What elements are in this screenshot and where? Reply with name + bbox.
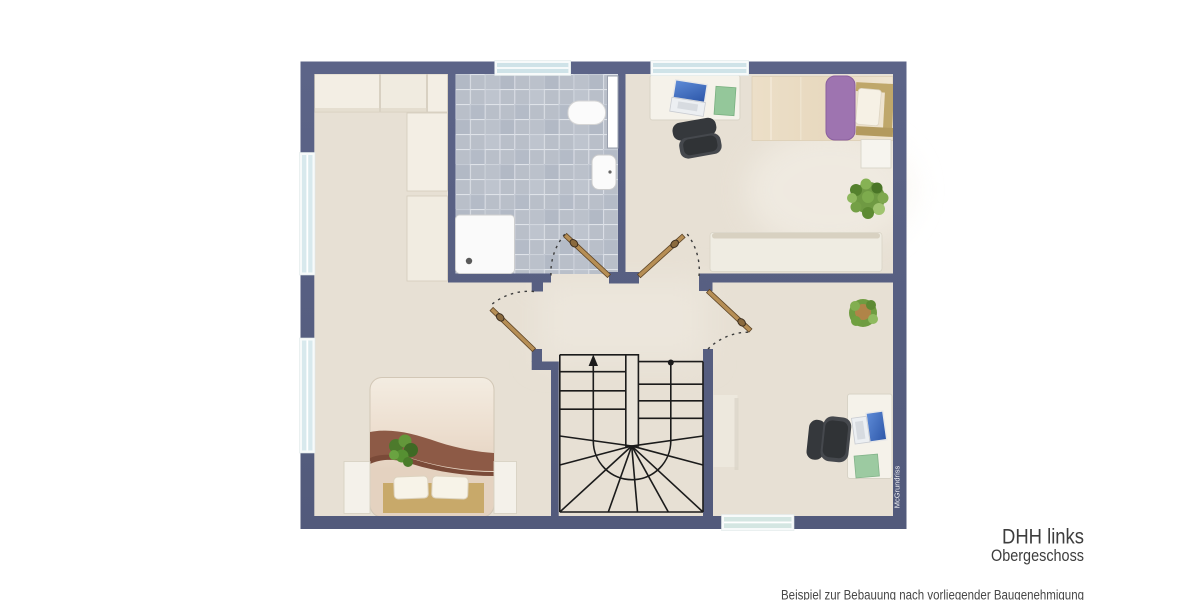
svg-text:McGrundriss: McGrundriss [893, 466, 902, 509]
svg-text:Obergeschoss: Obergeschoss [991, 546, 1084, 565]
svg-text:Beispiel zur Bebauung nach vor: Beispiel zur Bebauung nach vorliegender … [781, 588, 1084, 600]
